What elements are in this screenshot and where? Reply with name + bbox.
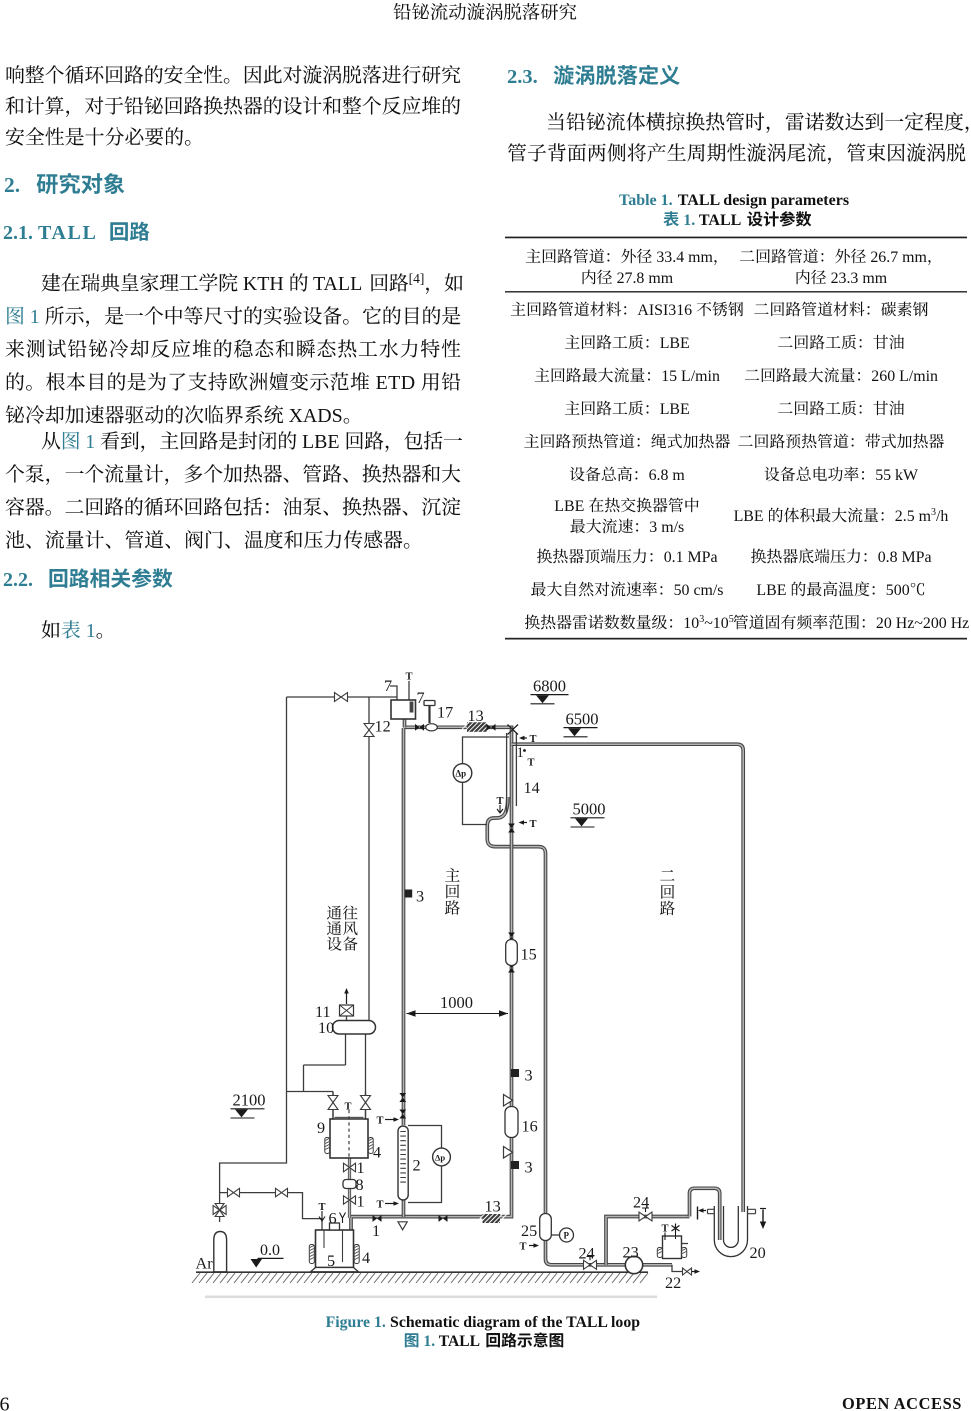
svg-text:1.: 1. (679, 212, 695, 229)
svg-text:26.7 mm: 26.7 mm (866, 249, 927, 266)
svg-text:20 Hz~200 Hz: 20 Hz~200 Hz (876, 615, 969, 632)
svg-text:1: 1 (517, 745, 524, 761)
svg-text:~10: ~10 (704, 615, 729, 632)
svg-text:9: 9 (317, 1119, 325, 1137)
svg-text:7: 7 (417, 689, 425, 707)
svg-text:1: 1 (81, 620, 96, 642)
svg-text:260 L/min: 260 L/min (871, 368, 938, 385)
svg-text:15: 15 (521, 946, 537, 964)
svg-text:Δp: Δp (435, 1153, 445, 1163)
svg-text:D: D (401, 372, 415, 394)
svg-text:3 m/s: 3 m/s (649, 519, 684, 536)
svg-text:TALL: TALL (435, 1333, 483, 1350)
svg-text:2.: 2. (4, 173, 20, 197)
svg-text:LBE: LBE (734, 508, 768, 525)
svg-text:Table 1.: Table 1. (619, 192, 673, 209)
svg-text:Figure 1.: Figure 1. (326, 1314, 386, 1331)
svg-text:11: 11 (315, 1003, 331, 1021)
svg-text:1.: 1. (420, 1333, 436, 1350)
svg-text:TALL: TALL (38, 222, 97, 244)
svg-text:AISI316: AISI316 (637, 302, 696, 319)
svg-text:E: E (376, 372, 388, 394)
svg-text:8: 8 (356, 1176, 364, 1194)
svg-text:T: T (530, 819, 537, 830)
svg-text:2: 2 (413, 1157, 421, 1175)
svg-text:1: 1 (25, 306, 45, 328)
svg-text:1: 1 (80, 431, 100, 453)
svg-text:T: T (530, 734, 537, 745)
svg-text:OPEN ACCESS: OPEN ACCESS (842, 1394, 962, 1411)
svg-text:12: 12 (375, 718, 391, 736)
svg-text:TALL design parameters: TALL design parameters (674, 192, 849, 209)
svg-text:1: 1 (357, 1193, 365, 1211)
svg-text:17: 17 (437, 704, 453, 722)
svg-text:5: 5 (729, 614, 734, 625)
svg-text:/h: /h (936, 508, 948, 525)
svg-text:0.0: 0.0 (260, 1242, 280, 1259)
svg-text:23.3 mm: 23.3 mm (827, 270, 888, 287)
svg-text:0.1 MPa: 0.1 MPa (664, 549, 718, 566)
svg-text:TALL: TALL (308, 273, 366, 295)
svg-text:33.4 mm: 33.4 mm (652, 249, 713, 266)
svg-text:2.2.: 2.2. (3, 569, 33, 591)
svg-text:T: T (406, 672, 413, 683)
svg-text:2.5 m: 2.5 m (895, 508, 932, 525)
svg-text:3: 3 (525, 1159, 533, 1177)
svg-text:6: 6 (0, 1394, 10, 1411)
svg-text:P: P (564, 1231, 570, 1241)
svg-text:55 kW: 55 kW (875, 467, 918, 484)
svg-text:10: 10 (318, 1019, 334, 1037)
svg-text:[4]: [4] (409, 271, 425, 286)
svg-text:6: 6 (329, 1210, 337, 1228)
svg-text:T: T (377, 1116, 384, 1127)
svg-text:Ar: Ar (196, 1255, 214, 1273)
svg-text:1: 1 (372, 1222, 380, 1240)
svg-text:4: 4 (373, 1144, 381, 1162)
svg-text:0.8 MPa: 0.8 MPa (878, 549, 932, 566)
svg-text:16: 16 (522, 1118, 538, 1136)
svg-text:5000: 5000 (573, 800, 606, 819)
svg-text:13: 13 (485, 1198, 501, 1216)
svg-text:6800: 6800 (533, 677, 566, 696)
svg-text:KTH: KTH (238, 273, 289, 295)
svg-text:2100: 2100 (233, 1091, 266, 1110)
svg-text:Schematic diagram of the TALL: Schematic diagram of the TALL loop (386, 1314, 640, 1331)
svg-text:TALL: TALL (695, 212, 744, 229)
svg-text:T: T (377, 1200, 384, 1211)
svg-text:14: 14 (524, 779, 540, 797)
svg-text:LBE: LBE (554, 498, 588, 515)
svg-text:2.3.: 2.3. (507, 66, 538, 88)
svg-text:2.1.: 2.1. (3, 222, 33, 244)
svg-text:LBE: LBE (660, 335, 690, 352)
svg-text:3: 3 (416, 888, 424, 906)
svg-text:T: T (528, 758, 535, 769)
svg-text:500: 500 (886, 582, 910, 599)
svg-text:20: 20 (750, 1244, 766, 1262)
svg-text:LBE: LBE (660, 401, 690, 418)
svg-text:LBE: LBE (297, 431, 345, 453)
svg-text:1: 1 (357, 1159, 365, 1177)
svg-text:27.8 mm: 27.8 mm (613, 270, 674, 287)
svg-text:LBE: LBE (756, 582, 790, 599)
svg-text:6500: 6500 (566, 710, 599, 729)
svg-text:22: 22 (665, 1274, 681, 1292)
svg-text:24: 24 (579, 1245, 595, 1263)
svg-text:10: 10 (683, 615, 699, 632)
svg-text:25: 25 (521, 1222, 537, 1240)
svg-text:15 L/min: 15 L/min (661, 368, 720, 385)
svg-text:23: 23 (623, 1244, 639, 1262)
svg-text:13: 13 (468, 707, 484, 725)
svg-text:4: 4 (362, 1249, 370, 1267)
svg-text:50 cm/s: 50 cm/s (674, 582, 724, 599)
svg-text:5: 5 (327, 1252, 335, 1270)
svg-text:24: 24 (633, 1194, 649, 1212)
svg-text:XADS: XADS (284, 405, 343, 427)
svg-text:Δp: Δp (456, 769, 467, 779)
svg-text:T: T (520, 1242, 527, 1253)
svg-text:T: T (388, 372, 400, 394)
svg-text:7: 7 (384, 677, 392, 695)
svg-text:6.8 m: 6.8 m (649, 467, 686, 484)
svg-text:3: 3 (525, 1067, 533, 1085)
svg-text:T: T (345, 1102, 352, 1113)
svg-text:1000: 1000 (440, 993, 473, 1012)
